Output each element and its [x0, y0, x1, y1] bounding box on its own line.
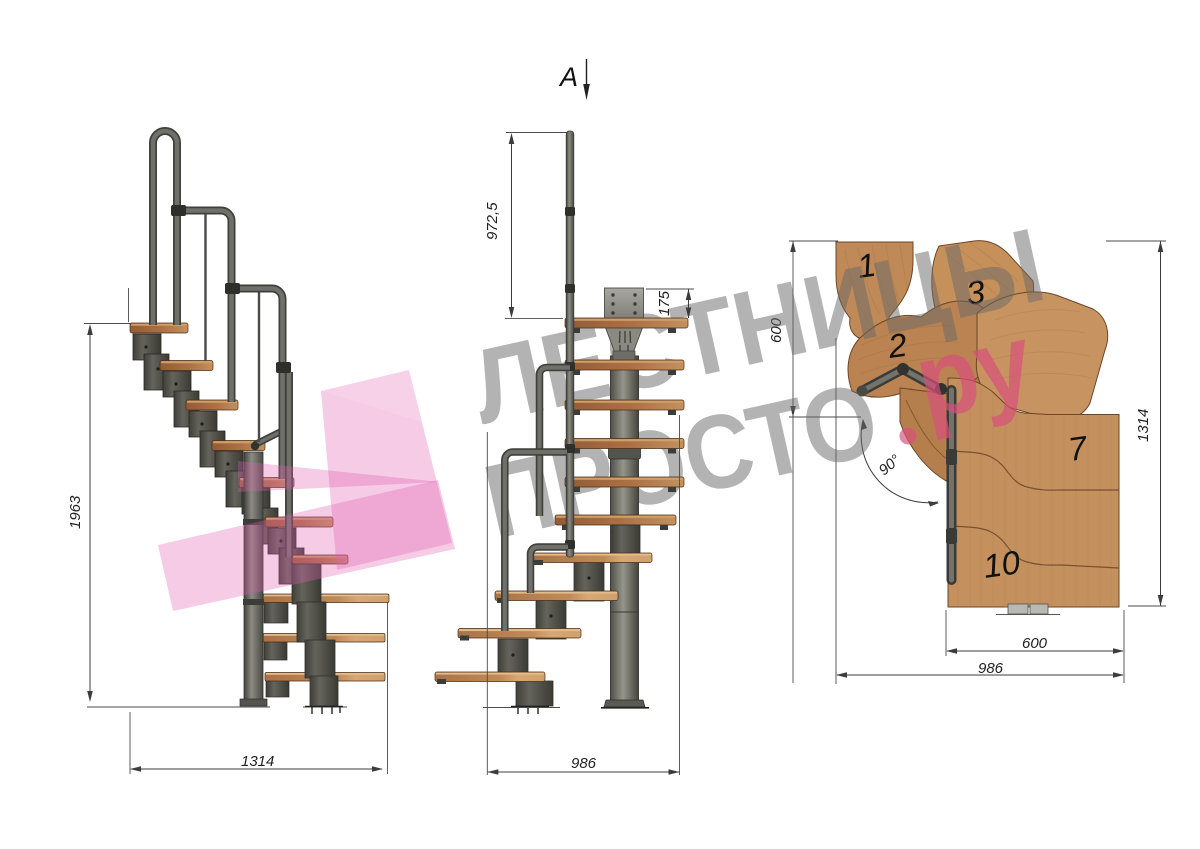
svg-text:986: 986 [978, 660, 1004, 677]
svg-text:1963: 1963 [67, 495, 84, 529]
svg-text:972,5: 972,5 [484, 202, 501, 240]
svg-text:175: 175 [656, 290, 673, 316]
svg-text:1314: 1314 [241, 753, 274, 770]
svg-text:1314: 1314 [1135, 409, 1152, 442]
svg-text:600: 600 [1022, 635, 1048, 652]
svg-text:986: 986 [571, 755, 597, 772]
svg-text:A: A [558, 62, 578, 92]
svg-text:10: 10 [981, 543, 1023, 585]
